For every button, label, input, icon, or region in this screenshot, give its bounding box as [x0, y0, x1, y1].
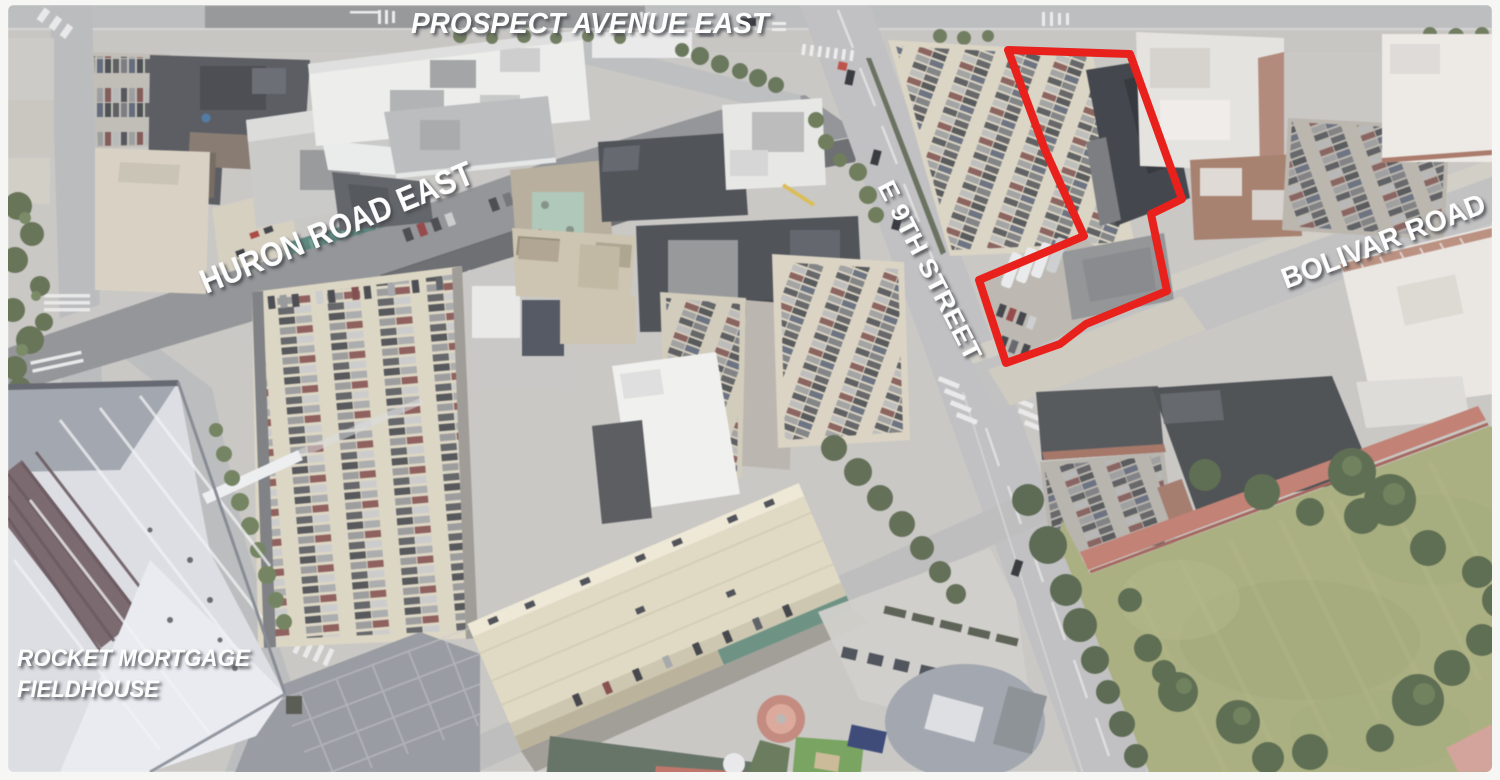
svg-text:ROCKET MORTGAGE: ROCKET MORTGAGE	[17, 645, 251, 672]
svg-text:FIELDHOUSE: FIELDHOUSE	[17, 676, 160, 703]
svg-text:PROSPECT AVENUE EAST: PROSPECT AVENUE EAST	[411, 8, 771, 40]
